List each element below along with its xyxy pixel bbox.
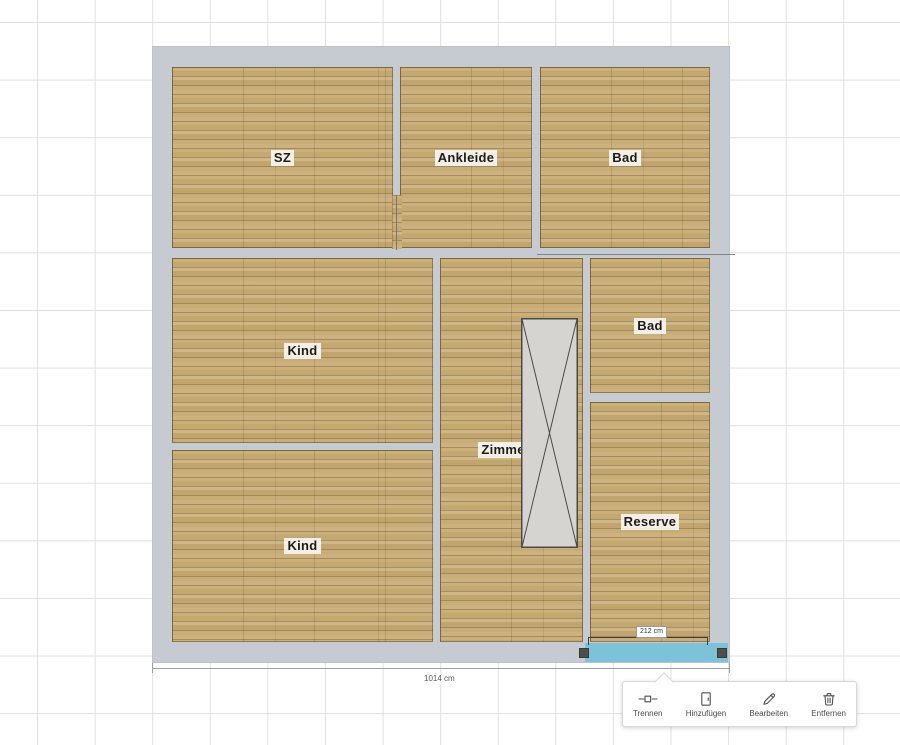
- bearbeiten-label: Bearbeiten: [749, 709, 788, 718]
- room-kind-middle[interactable]: Kind: [172, 258, 433, 443]
- wall-context-toolbar: Trennen Hinzufügen Bearbeiten: [622, 681, 857, 727]
- add-door-icon: [698, 691, 714, 707]
- room-label-sz: SZ: [271, 150, 294, 166]
- overall-dimension-tick-right: [729, 663, 730, 673]
- trennen-button[interactable]: Trennen: [633, 691, 663, 718]
- trennen-label: Trennen: [633, 709, 663, 718]
- room-divider-line: [396, 195, 397, 250]
- room-label-kind-bottom: Kind: [284, 538, 320, 554]
- entfernen-label: Entfernen: [811, 709, 846, 718]
- hinzufuegen-button[interactable]: Hinzufügen: [686, 691, 726, 718]
- wall-opening-patch: [392, 195, 402, 249]
- wall-length-bracket-tick-right: [707, 637, 708, 645]
- bearbeiten-button[interactable]: Bearbeiten: [749, 691, 788, 718]
- edit-pencil-icon: [761, 691, 777, 707]
- room-label-reserve: Reserve: [621, 514, 680, 530]
- measure-guide-line: [537, 254, 735, 255]
- room-label-bad-top: Bad: [609, 150, 640, 166]
- room-kind-bottom[interactable]: Kind: [172, 450, 433, 642]
- split-wall-icon: [638, 691, 658, 707]
- wall-length-bracket-tick-left: [588, 637, 589, 645]
- room-bad-top[interactable]: Bad: [540, 67, 710, 248]
- room-sz[interactable]: SZ: [172, 67, 393, 248]
- room-label-kind-middle: Kind: [284, 343, 320, 359]
- overall-dimension-tick-left: [152, 663, 153, 673]
- wall-length-label: 212 cm: [636, 626, 667, 638]
- room-ankleide[interactable]: Ankleide: [400, 67, 532, 248]
- floorplan-canvas[interactable]: SZ Ankleide Bad Kind Kind Zimmer 3 Bad R…: [0, 0, 900, 745]
- hinzufuegen-label: Hinzufügen: [686, 709, 726, 718]
- selected-wall-segment[interactable]: [585, 643, 728, 662]
- wall-handle-left[interactable]: [579, 648, 589, 658]
- room-reserve[interactable]: Reserve: [590, 402, 710, 642]
- wall-handle-right[interactable]: [717, 648, 727, 658]
- room-bad-middle[interactable]: Bad: [590, 258, 710, 393]
- delete-trash-icon: [821, 691, 837, 707]
- room-label-ankleide: Ankleide: [435, 150, 498, 166]
- overall-dimension-line: [152, 668, 730, 669]
- overall-dimension-label: 1014 cm: [420, 673, 459, 684]
- room-label-bad-middle: Bad: [634, 318, 665, 334]
- toolbar-caret: [654, 672, 674, 692]
- staircase-object[interactable]: [521, 318, 578, 548]
- entfernen-button[interactable]: Entfernen: [811, 691, 846, 718]
